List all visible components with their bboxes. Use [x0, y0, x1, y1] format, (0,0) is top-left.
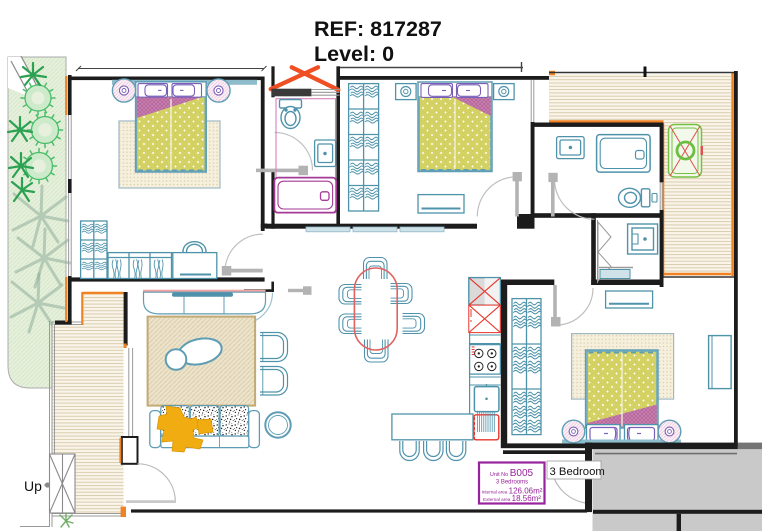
svg-text:REF: 817287: REF: 817287 — [314, 17, 442, 41]
svg-text:3 Bedroom: 3 Bedroom — [550, 466, 605, 478]
svg-text:3 Bedrooms: 3 Bedrooms — [496, 480, 528, 486]
svg-text:Level: 0: Level: 0 — [314, 42, 394, 66]
svg-text:Up: Up — [24, 478, 42, 494]
